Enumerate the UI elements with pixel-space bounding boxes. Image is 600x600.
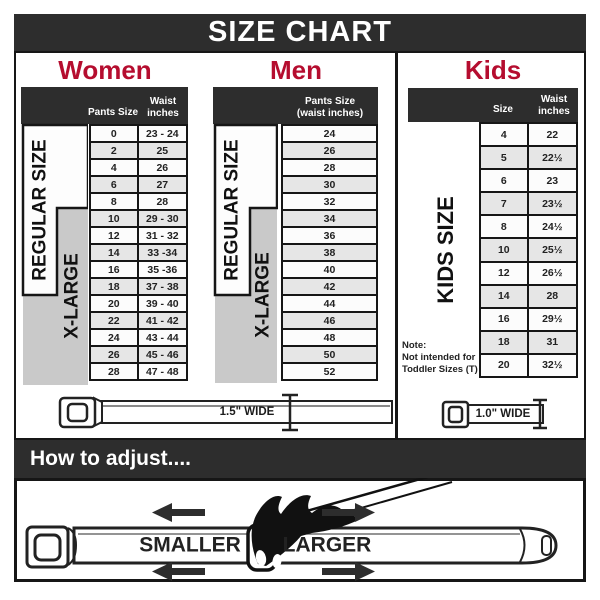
table-cell: 25½	[529, 239, 576, 260]
size-chart-infographic: SIZE CHART Women Men Kids Pants Size Wai…	[0, 0, 600, 600]
table-cell: 35 -36	[139, 262, 186, 277]
kids-belt-illustration: 1.0" WIDE	[400, 390, 586, 435]
table-cell: 28	[139, 194, 186, 209]
men-size-group-labels: REGULAR SIZE X-LARGE	[213, 123, 278, 384]
kids-belt-width-label: 1.0" WIDE	[476, 408, 531, 420]
table-cell: 31	[529, 332, 576, 353]
table-cell: 44	[283, 296, 376, 311]
belt-tail-line	[296, 478, 438, 514]
kids-note: Note: Not intended for Toddler Sizes (T)	[402, 340, 480, 376]
table-cell: 40	[283, 262, 376, 277]
kids-heading: Kids	[413, 55, 573, 85]
table-cell: 7	[481, 193, 527, 214]
table-cell: 5	[481, 147, 527, 168]
table-cell: 6	[481, 170, 527, 191]
table-cell: 0	[91, 126, 137, 141]
table-cell: 30	[283, 177, 376, 192]
table-cell: 16	[481, 309, 527, 330]
table-cell: 33 -34	[139, 245, 186, 260]
table-cell: 38	[283, 245, 376, 260]
table-cell: 46	[283, 313, 376, 328]
larger-label: LARGER	[283, 534, 372, 557]
table-cell: 28	[283, 160, 376, 175]
belt-tip-slot	[542, 536, 551, 555]
table-cell: 32	[283, 194, 376, 209]
table-cell: 20	[91, 296, 137, 311]
table-cell: 42	[283, 279, 376, 294]
table-cell: 36	[283, 228, 376, 243]
table-cell: 31 - 32	[139, 228, 186, 243]
table-cell: 45 - 46	[139, 347, 186, 362]
table-cell: 52	[283, 364, 376, 379]
table-cell: 12	[481, 263, 527, 284]
arrow-right-icon	[322, 562, 375, 581]
table-cell: 23½	[529, 193, 576, 214]
women-pants-size-header: Pants Size	[83, 107, 143, 119]
table-cell: 6	[91, 177, 137, 192]
table-cell: 37 - 38	[139, 279, 186, 294]
kids-waist-header: Waist inches	[527, 94, 581, 118]
women-heading: Women	[25, 55, 185, 85]
women-waist-header: Waist inches	[137, 96, 189, 120]
adult-belt-buckle-icon	[60, 398, 95, 427]
arrow-left-icon	[152, 503, 205, 522]
table-cell: 28	[529, 286, 576, 307]
table-cell: 29 - 30	[139, 211, 186, 226]
table-cell: 18	[91, 279, 137, 294]
table-cell: 12	[91, 228, 137, 243]
table-cell: 18	[481, 332, 527, 353]
table-cell: 22	[529, 124, 576, 145]
table-cell: 24	[283, 126, 376, 141]
men-heading: Men	[216, 55, 376, 85]
table-cell: 23 - 24	[139, 126, 186, 141]
table-cell: 43 - 44	[139, 330, 186, 345]
table-cell: 14	[481, 286, 527, 307]
table-cell: 8	[91, 194, 137, 209]
table-cell: 22½	[529, 147, 576, 168]
table-cell: 20	[481, 355, 527, 376]
table-cell: 25	[139, 143, 186, 158]
table-cell: 14	[91, 245, 137, 260]
table-cell: 16	[91, 262, 137, 277]
table-cell: 2	[91, 143, 137, 158]
table-cell: 34	[283, 211, 376, 226]
arrow-left-icon	[152, 562, 205, 581]
smaller-label: SMALLER	[139, 534, 241, 557]
kids-panel-divider	[395, 51, 398, 440]
table-cell: 24½	[529, 216, 576, 237]
table-cell: 32½	[529, 355, 576, 376]
adult-belt-width-label: 1.5" WIDE	[220, 406, 275, 418]
men-regular-label: REGULAR SIZE	[222, 139, 243, 280]
adult-belt-illustration: 1.5" WIDE	[20, 390, 396, 435]
men-size-table: 242628303234363840424446485052	[281, 124, 378, 381]
table-cell: 39 - 40	[139, 296, 186, 311]
table-cell: 50	[283, 347, 376, 362]
page-title: SIZE CHART	[208, 16, 392, 49]
table-cell: 47 - 48	[139, 364, 186, 379]
table-cell: 29½	[529, 309, 576, 330]
table-cell: 4	[481, 124, 527, 145]
table-cell: 27	[139, 177, 186, 192]
table-cell: 26	[139, 160, 186, 175]
women-size-group-labels: REGULAR SIZE X-LARGE	[21, 123, 88, 386]
adjust-heading: How to adjust....	[14, 447, 191, 471]
kids-size-header: Size	[475, 104, 531, 116]
title-bar: SIZE CHART	[14, 14, 586, 51]
kids-size-table: 422522½623723½824½1025½1226½14281629½183…	[479, 122, 578, 378]
table-cell: 10	[91, 211, 137, 226]
table-cell: 22	[91, 313, 137, 328]
men-pants-size-header: Pants Size (waist inches)	[268, 96, 392, 120]
table-cell: 26	[91, 347, 137, 362]
table-cell: 8	[481, 216, 527, 237]
women-xlarge-label: X-LARGE	[62, 253, 83, 339]
kids-size-group-label: KIDS SIZE	[433, 175, 459, 325]
men-xlarge-label: X-LARGE	[253, 252, 274, 338]
table-cell: 41 - 42	[139, 313, 186, 328]
table-cell: 28	[91, 364, 137, 379]
women-regular-label: REGULAR SIZE	[30, 139, 51, 280]
table-cell: 48	[283, 330, 376, 345]
table-cell: 4	[91, 160, 137, 175]
adjust-illustration: SMALLER LARGER	[14, 478, 586, 582]
women-size-table: 023 - 242254266278281029 - 301231 - 3214…	[89, 124, 188, 381]
table-cell: 24	[91, 330, 137, 345]
table-cell: 23	[529, 170, 576, 191]
table-cell: 10	[481, 239, 527, 260]
adjust-section-bar: How to adjust....	[14, 440, 586, 478]
table-cell: 26½	[529, 263, 576, 284]
table-cell: 26	[283, 143, 376, 158]
